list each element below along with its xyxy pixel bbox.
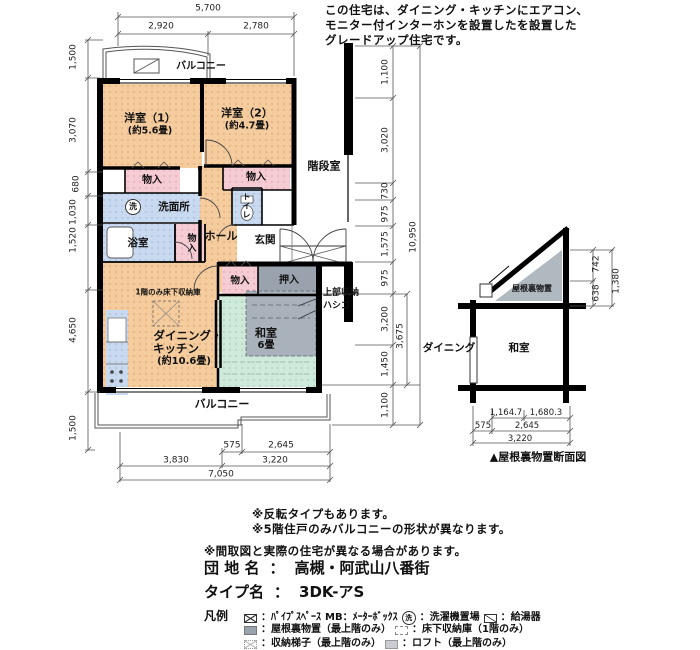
dim-top-total: 5,700 bbox=[195, 5, 221, 14]
dim-left-1500a: 1,500 bbox=[70, 44, 79, 70]
legend-attic-label: ：屋根裏物置（最上階のみ） bbox=[261, 625, 391, 635]
dim-right-3200: 3,200 bbox=[382, 306, 391, 332]
label-upper-storage-ladder: ハシゴ bbox=[323, 302, 350, 311]
section-dim-1164: 1,164.7 bbox=[490, 409, 522, 418]
section-dim-1680: 1,680.3 bbox=[530, 409, 562, 418]
dim-left-4650: 4,650 bbox=[70, 317, 79, 343]
label-closet-2: 物入 bbox=[246, 173, 266, 183]
dim-right-1100a: 1,100 bbox=[382, 59, 391, 85]
note-reverse-type: ※反転タイプもあります。 bbox=[252, 509, 395, 521]
dim-bottom-3220: 3,220 bbox=[262, 457, 288, 466]
danchi-label: 団 地 名 bbox=[204, 559, 259, 577]
upper-storage-overlay bbox=[246, 291, 316, 356]
section-label-dining: ダイニング bbox=[423, 343, 476, 354]
dim-right-3675: 3,675 bbox=[397, 323, 406, 349]
dim-top-right: 2,780 bbox=[243, 23, 269, 32]
label-oshiire: 押入 bbox=[279, 276, 299, 286]
label-yoshitsu2-size: (約4.7畳) bbox=[225, 121, 270, 131]
label-bath: 浴室 bbox=[128, 238, 149, 249]
danchi-value: 高槻・阿武山八番街 bbox=[294, 559, 429, 577]
label-yoshitsu1: 洋室（1） bbox=[124, 113, 176, 124]
label-genkan: 玄関 bbox=[255, 235, 276, 246]
dim-left-3070: 3,070 bbox=[70, 117, 79, 143]
section-dim-638: 638 bbox=[593, 284, 602, 301]
dim-right-730: 730 bbox=[382, 182, 391, 199]
section-dim-2645: 2,645 bbox=[515, 422, 539, 431]
label-yoshitsu2: 洋室（2） bbox=[221, 108, 273, 119]
legend-title: 凡例 bbox=[204, 610, 228, 622]
legend-loft-label: ：ロフト（最上階のみ） bbox=[402, 639, 512, 649]
dim-top-left: 2,920 bbox=[148, 23, 174, 32]
label-closet-3: 物入 bbox=[186, 233, 195, 253]
dim-left-1500b: 1,500 bbox=[70, 415, 79, 441]
label-upper-storage: 上部収納 bbox=[323, 289, 359, 298]
type-label: タイプ名 bbox=[204, 583, 264, 601]
note-5f-balcony: ※5階住戸のみバルコニーの形状が異なります。 bbox=[252, 524, 511, 536]
water-heater-icon bbox=[484, 614, 497, 623]
label-closet-4: 物入 bbox=[230, 276, 249, 286]
underfloor-storage-icon bbox=[395, 626, 408, 635]
legend-washer-label: ：洗濯機置場 bbox=[420, 613, 480, 623]
header-note-line2: モニター付インターホンを設置したを設置した bbox=[325, 20, 577, 32]
danchi-sep: ： bbox=[269, 559, 284, 577]
dim-right-975b: 975 bbox=[382, 269, 391, 286]
header-note-line1: この住宅は、ダイニング・キッチンにエアコン、 bbox=[325, 5, 588, 17]
label-washitsu: 和室 bbox=[255, 328, 277, 339]
dim-right-975a: 975 bbox=[382, 205, 391, 222]
legend-underfloor-label: ：床下収納庫（1階のみ） bbox=[412, 625, 529, 635]
danchi-row: 団 地 名：高槻・阿武山八番街 bbox=[204, 561, 429, 576]
dim-bottom-7050: 7,050 bbox=[208, 471, 234, 480]
label-dk-size: (約10.6畳) bbox=[157, 357, 211, 367]
label-closet-1: 物入 bbox=[142, 176, 162, 186]
dim-right-1100b: 1,100 bbox=[382, 392, 391, 418]
label-washitsu-size: 6畳 bbox=[258, 341, 275, 351]
section-caption: ▲屋根裏物置断面図 bbox=[490, 452, 586, 463]
legend-pipe-label: ：ﾊﾟｲﾌﾟｽﾍﾟｰｽ bbox=[261, 613, 321, 623]
section-hatch-door bbox=[480, 284, 492, 297]
section-label-washitsu: 和室 bbox=[509, 343, 530, 354]
dim-bottom-2645: 2,645 bbox=[268, 442, 294, 451]
label-toilet: トイレ bbox=[242, 193, 250, 220]
label-senmenjo: 洗面所 bbox=[158, 202, 190, 213]
dim-right-3020: 3,020 bbox=[382, 127, 391, 153]
label-balcony-bottom: バルコニー bbox=[195, 399, 250, 410]
washer-symbol: 洗 bbox=[125, 199, 141, 215]
storage-ladder-icon bbox=[244, 640, 257, 649]
legend-ladder-label: ：収納梯子（最上階のみ） bbox=[261, 639, 381, 649]
dim-left-680: 680 bbox=[73, 175, 82, 192]
legend-row-1: ：ﾊﾟｲﾌﾟｽﾍﾟｰｽ MB：ﾒｰﾀｰﾎﾞｯｸｽ 洗：洗濯機置場 ：給湯器 bbox=[244, 611, 541, 625]
note-plan-differs: ※間取図と実際の住宅が異なる場合があります。 bbox=[204, 546, 467, 558]
dim-bottom-575: 575 bbox=[223, 442, 240, 451]
dim-left-1520: 1,520 bbox=[70, 227, 79, 253]
floorplan-page: この住宅は、ダイニング・キッチンにエアコン、 モニター付インターホンを設置したを… bbox=[0, 0, 700, 650]
label-dk-line1: ダイニング・ bbox=[154, 330, 223, 342]
dim-bottom-3830: 3,830 bbox=[163, 457, 189, 466]
label-balcony-top: バルコニー bbox=[176, 62, 226, 72]
section-dim-3220: 3,220 bbox=[508, 435, 532, 444]
label-yoshitsu1-size: (約5.6畳) bbox=[128, 126, 173, 136]
kitchen-sink bbox=[108, 318, 126, 342]
legend-mb-label: MB：ﾒｰﾀｰﾎﾞｯｸｽ bbox=[325, 613, 398, 623]
wall-stairwell-right-top bbox=[344, 43, 353, 155]
legend-row-3: ：収納梯子（最上階のみ） ：ロフト（最上階のみ） bbox=[244, 639, 512, 649]
dim-right-1575: 1,575 bbox=[382, 231, 391, 257]
section-dim-1380: 1,380 bbox=[613, 268, 622, 294]
pipe-space-icon bbox=[244, 614, 257, 623]
label-stairwell: 階段室 bbox=[308, 161, 341, 172]
section-dim-575: 575 bbox=[475, 422, 491, 431]
loft-icon bbox=[385, 640, 398, 649]
washer-place-icon: 洗 bbox=[402, 611, 416, 625]
label-underfloor-storage: 1階のみ床下収納庫 bbox=[135, 288, 200, 296]
type-value: 3DK-アS bbox=[299, 583, 364, 601]
label-dk-line2: キッチン bbox=[153, 343, 199, 355]
type-sep: ： bbox=[274, 583, 289, 601]
section-dim-742: 742 bbox=[593, 255, 602, 272]
type-row: タイプ名：3DK-アS bbox=[204, 585, 364, 600]
label-hall: ホール bbox=[205, 231, 238, 242]
dim-left-1030: 1,030 bbox=[70, 199, 79, 225]
header-note-line3: グレードアップ住宅です。 bbox=[325, 35, 468, 47]
legend-heater-label: ：給湯器 bbox=[501, 613, 541, 623]
legend-row-2: ：屋根裏物置（最上階のみ） ：床下収納庫（1階のみ） bbox=[244, 625, 529, 635]
dim-right-10950: 10,950 bbox=[410, 221, 419, 253]
section-label-attic: 屋根裏物置 bbox=[512, 285, 552, 293]
attic-storage-icon bbox=[244, 626, 257, 635]
dim-right-1450: 1,450 bbox=[382, 351, 391, 377]
